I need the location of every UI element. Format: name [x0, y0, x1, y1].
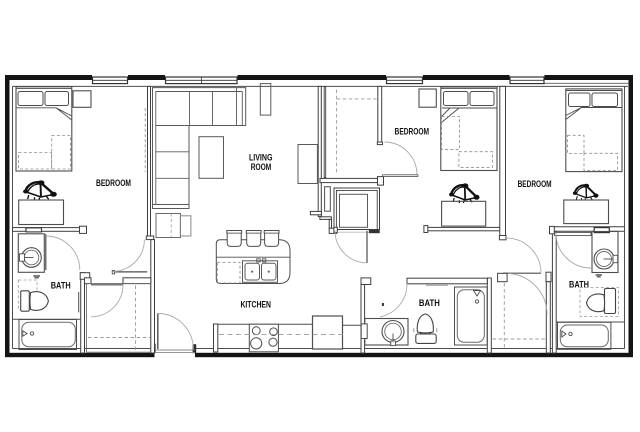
svg-text:BATH: BATH: [51, 280, 71, 290]
svg-text:KITCHEN: KITCHEN: [240, 300, 271, 310]
svg-text:BEDROOM: BEDROOM: [96, 178, 131, 188]
svg-text:BATH: BATH: [419, 298, 440, 308]
svg-text:BEDROOM: BEDROOM: [518, 179, 552, 189]
svg-text:ROOM: ROOM: [251, 162, 272, 172]
svg-text:BEDROOM: BEDROOM: [395, 126, 430, 136]
